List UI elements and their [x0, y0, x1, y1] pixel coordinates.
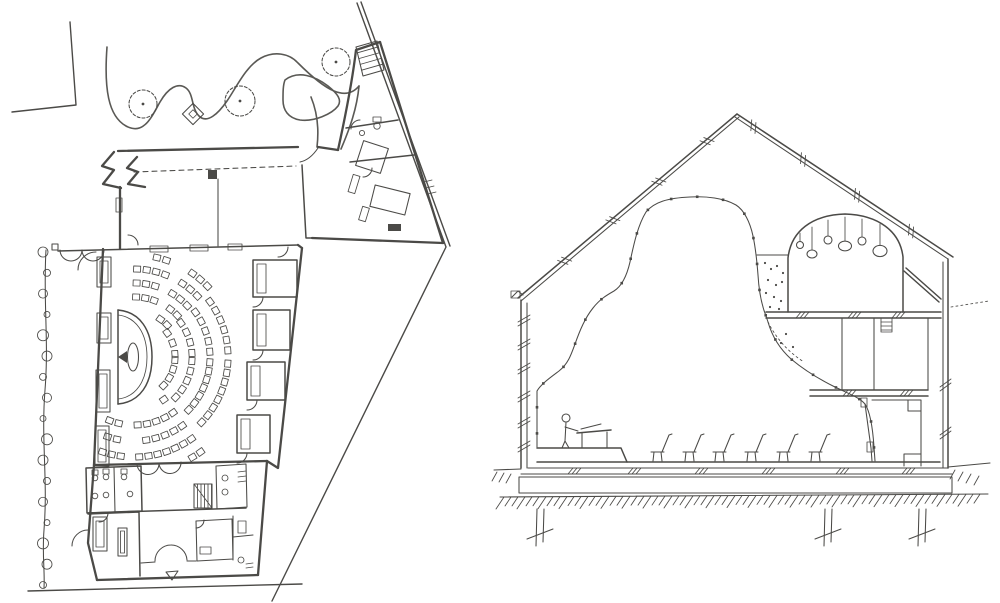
- hall-north-wall-east: [318, 147, 338, 150]
- seat: [187, 367, 195, 375]
- seat: [153, 254, 161, 261]
- scanned-architectural-drawing: [0, 0, 1000, 603]
- site-boundary-corner: [12, 22, 76, 112]
- seat: [196, 275, 205, 284]
- seat: [98, 448, 107, 456]
- seat: [161, 271, 170, 279]
- seat: [223, 369, 230, 377]
- loft-sloped-ceiling: [904, 268, 941, 302]
- seat: [176, 295, 185, 304]
- left-wall-ticks: [518, 315, 530, 452]
- insulation-dots: [764, 262, 794, 348]
- site-boundary-bottom: [28, 584, 302, 591]
- side-room-door-arc: [253, 297, 263, 307]
- chair-profile: [745, 434, 766, 461]
- seat: [214, 395, 223, 404]
- foundation-piles: [527, 509, 935, 546]
- seat: [225, 360, 231, 367]
- seat: [216, 316, 224, 325]
- wing-dark-fixture: [388, 224, 401, 231]
- side-room-radiator: [241, 419, 250, 449]
- seat: [183, 301, 192, 310]
- seat: [134, 422, 141, 428]
- seat: [152, 268, 160, 276]
- grade-dashed-right: [951, 301, 989, 307]
- side-room: [247, 362, 285, 400]
- seat: [186, 285, 195, 294]
- wing-south-wall: [312, 238, 443, 243]
- curved-ceiling-profile: [537, 197, 875, 461]
- seat: [220, 326, 228, 334]
- pendant-lamp: [824, 236, 832, 244]
- side-room-door-arc: [253, 350, 263, 360]
- seat: [203, 411, 212, 420]
- hedge-end-post: [52, 244, 58, 250]
- seat: [188, 269, 197, 278]
- seat: [145, 452, 153, 459]
- seat: [152, 417, 161, 425]
- seat: [161, 431, 170, 439]
- wing-partition-1: [346, 120, 398, 128]
- seat: [160, 413, 169, 422]
- seat: [159, 381, 168, 390]
- seat: [207, 359, 213, 366]
- seat: [188, 453, 197, 462]
- seat: [197, 317, 206, 326]
- lectern-table: [577, 424, 611, 448]
- garden-trees: [129, 48, 350, 118]
- sanitary-room: [216, 464, 247, 509]
- entrance-door-swing: [300, 148, 318, 162]
- seat: [151, 282, 159, 290]
- floor-slab: [521, 468, 952, 474]
- far-east-room: [233, 516, 253, 568]
- southeast-room: [196, 519, 233, 561]
- seat: [142, 280, 150, 287]
- wing-wc-fixture: [359, 117, 381, 136]
- seat: [132, 294, 139, 300]
- seat: [171, 393, 180, 402]
- floor-hatch-marks: [568, 468, 915, 474]
- seat: [168, 408, 177, 417]
- seat: [171, 444, 180, 452]
- pendant-lamp: [797, 242, 804, 249]
- wing-window-box: [348, 174, 360, 193]
- wing-partition-2: [350, 155, 414, 162]
- wc-fixtures: [92, 469, 133, 499]
- garden-planter: [182, 103, 203, 124]
- seat: [162, 448, 171, 456]
- pendant-lamp: [858, 237, 866, 245]
- seat: [162, 256, 171, 264]
- seat: [205, 337, 212, 345]
- slab-hatch: [843, 390, 913, 396]
- seat: [218, 387, 226, 396]
- podium-platform: [537, 448, 627, 462]
- seat: [141, 294, 149, 301]
- seat: [191, 308, 200, 317]
- wing-window-box-2: [359, 206, 370, 221]
- seat: [113, 436, 121, 443]
- wing-east-wall: [380, 42, 443, 243]
- pendant-lamp: [807, 250, 817, 258]
- chair-profile: [713, 434, 734, 461]
- seat: [221, 378, 229, 386]
- drawing-canvas: [0, 0, 1000, 603]
- seat: [186, 338, 194, 346]
- audience-chairs: [651, 434, 830, 461]
- seat: [150, 296, 159, 304]
- seat: [169, 365, 177, 373]
- seat: [178, 279, 187, 288]
- seat: [169, 427, 178, 436]
- chair-profile: [651, 434, 672, 461]
- seat: [189, 349, 195, 356]
- seat: [182, 328, 190, 337]
- seat: [152, 434, 160, 442]
- ceiling-transition-dashed: [768, 322, 804, 362]
- side-room: [237, 415, 270, 453]
- seat: [183, 376, 191, 385]
- roof-joint-ticks: [558, 120, 914, 265]
- seat: [143, 266, 151, 273]
- service-block: [72, 461, 267, 580]
- seat: [103, 433, 112, 441]
- southwest-room: [72, 512, 140, 576]
- seat: [143, 420, 151, 427]
- garden-path-entry-west: [311, 97, 318, 147]
- seat: [203, 375, 211, 383]
- seat: [165, 373, 174, 382]
- seat: [136, 454, 143, 460]
- seat: [153, 450, 161, 457]
- seat: [193, 291, 202, 300]
- seat: [195, 391, 204, 400]
- seat: [225, 347, 231, 354]
- seat: [166, 305, 175, 314]
- west-gable-jagged-wall: [102, 152, 121, 188]
- seat: [179, 440, 188, 449]
- chair-profile: [683, 434, 704, 461]
- seat: [187, 434, 196, 443]
- loft-floor-hatch: [796, 312, 905, 318]
- hall-east-wall: [302, 165, 312, 238]
- chair-profile: [777, 434, 798, 461]
- roof-right-inner: [735, 117, 948, 259]
- seat: [205, 367, 212, 375]
- seat: [203, 281, 212, 290]
- seat: [199, 383, 207, 392]
- side-room-radiator: [257, 264, 266, 293]
- speaker-figure: [562, 414, 578, 448]
- hall-south-wall: [58, 245, 298, 251]
- seat: [184, 405, 193, 414]
- seat: [178, 385, 187, 394]
- lectern: [118, 343, 139, 371]
- seat: [190, 398, 199, 407]
- west-window-boxes: [93, 257, 111, 551]
- seat: [196, 448, 205, 457]
- wing-table: [370, 185, 410, 215]
- stairwell: [194, 484, 212, 508]
- seat: [117, 453, 125, 460]
- seat: [142, 437, 150, 444]
- auditorium-north-jog: [298, 245, 302, 248]
- roof-left-inner: [521, 117, 739, 301]
- seat: [201, 327, 209, 336]
- hall-door-arc: [128, 235, 138, 245]
- seat: [223, 336, 230, 344]
- seat: [133, 266, 140, 272]
- seat: [206, 297, 215, 306]
- seat: [105, 416, 114, 424]
- seat: [159, 395, 168, 404]
- seat: [197, 418, 206, 427]
- seat: [189, 357, 195, 364]
- seat: [207, 348, 213, 355]
- auditorium-north-door-arc: [278, 247, 288, 257]
- seat: [168, 339, 176, 348]
- floor-plan: [12, 2, 450, 601]
- seat: [133, 280, 140, 286]
- right-rooms-lower: [861, 398, 921, 466]
- side-room-door-arc: [247, 400, 257, 410]
- hall-north-wall: [118, 147, 298, 151]
- side-room-radiator: [251, 366, 260, 396]
- foundation-slab: [519, 477, 952, 493]
- seat: [156, 315, 165, 324]
- loft-floor: [766, 312, 941, 318]
- hall-column: [208, 170, 217, 179]
- seat: [168, 289, 177, 298]
- right-rooms-upper: [810, 318, 928, 396]
- cross-section: [492, 114, 990, 546]
- right-wall-ticks: [940, 379, 951, 439]
- ceiling-fixing-dots: [536, 195, 876, 448]
- side-room: [253, 310, 290, 350]
- east-side-rooms: [237, 260, 297, 463]
- loft-arch: [788, 214, 903, 312]
- seat: [178, 421, 187, 430]
- seat: [115, 420, 123, 427]
- seat: [209, 403, 218, 412]
- grade-line-right: [948, 463, 990, 467]
- ground-guide-line: [500, 494, 988, 497]
- seat: [211, 306, 220, 315]
- side-room: [253, 260, 297, 297]
- entry-double-door: [141, 545, 196, 563]
- pendant-lamp: [873, 245, 887, 256]
- side-room-radiator: [257, 314, 266, 346]
- grade-line-left: [494, 469, 521, 470]
- pendant-lamp: [839, 241, 852, 251]
- chair-profile: [809, 434, 830, 461]
